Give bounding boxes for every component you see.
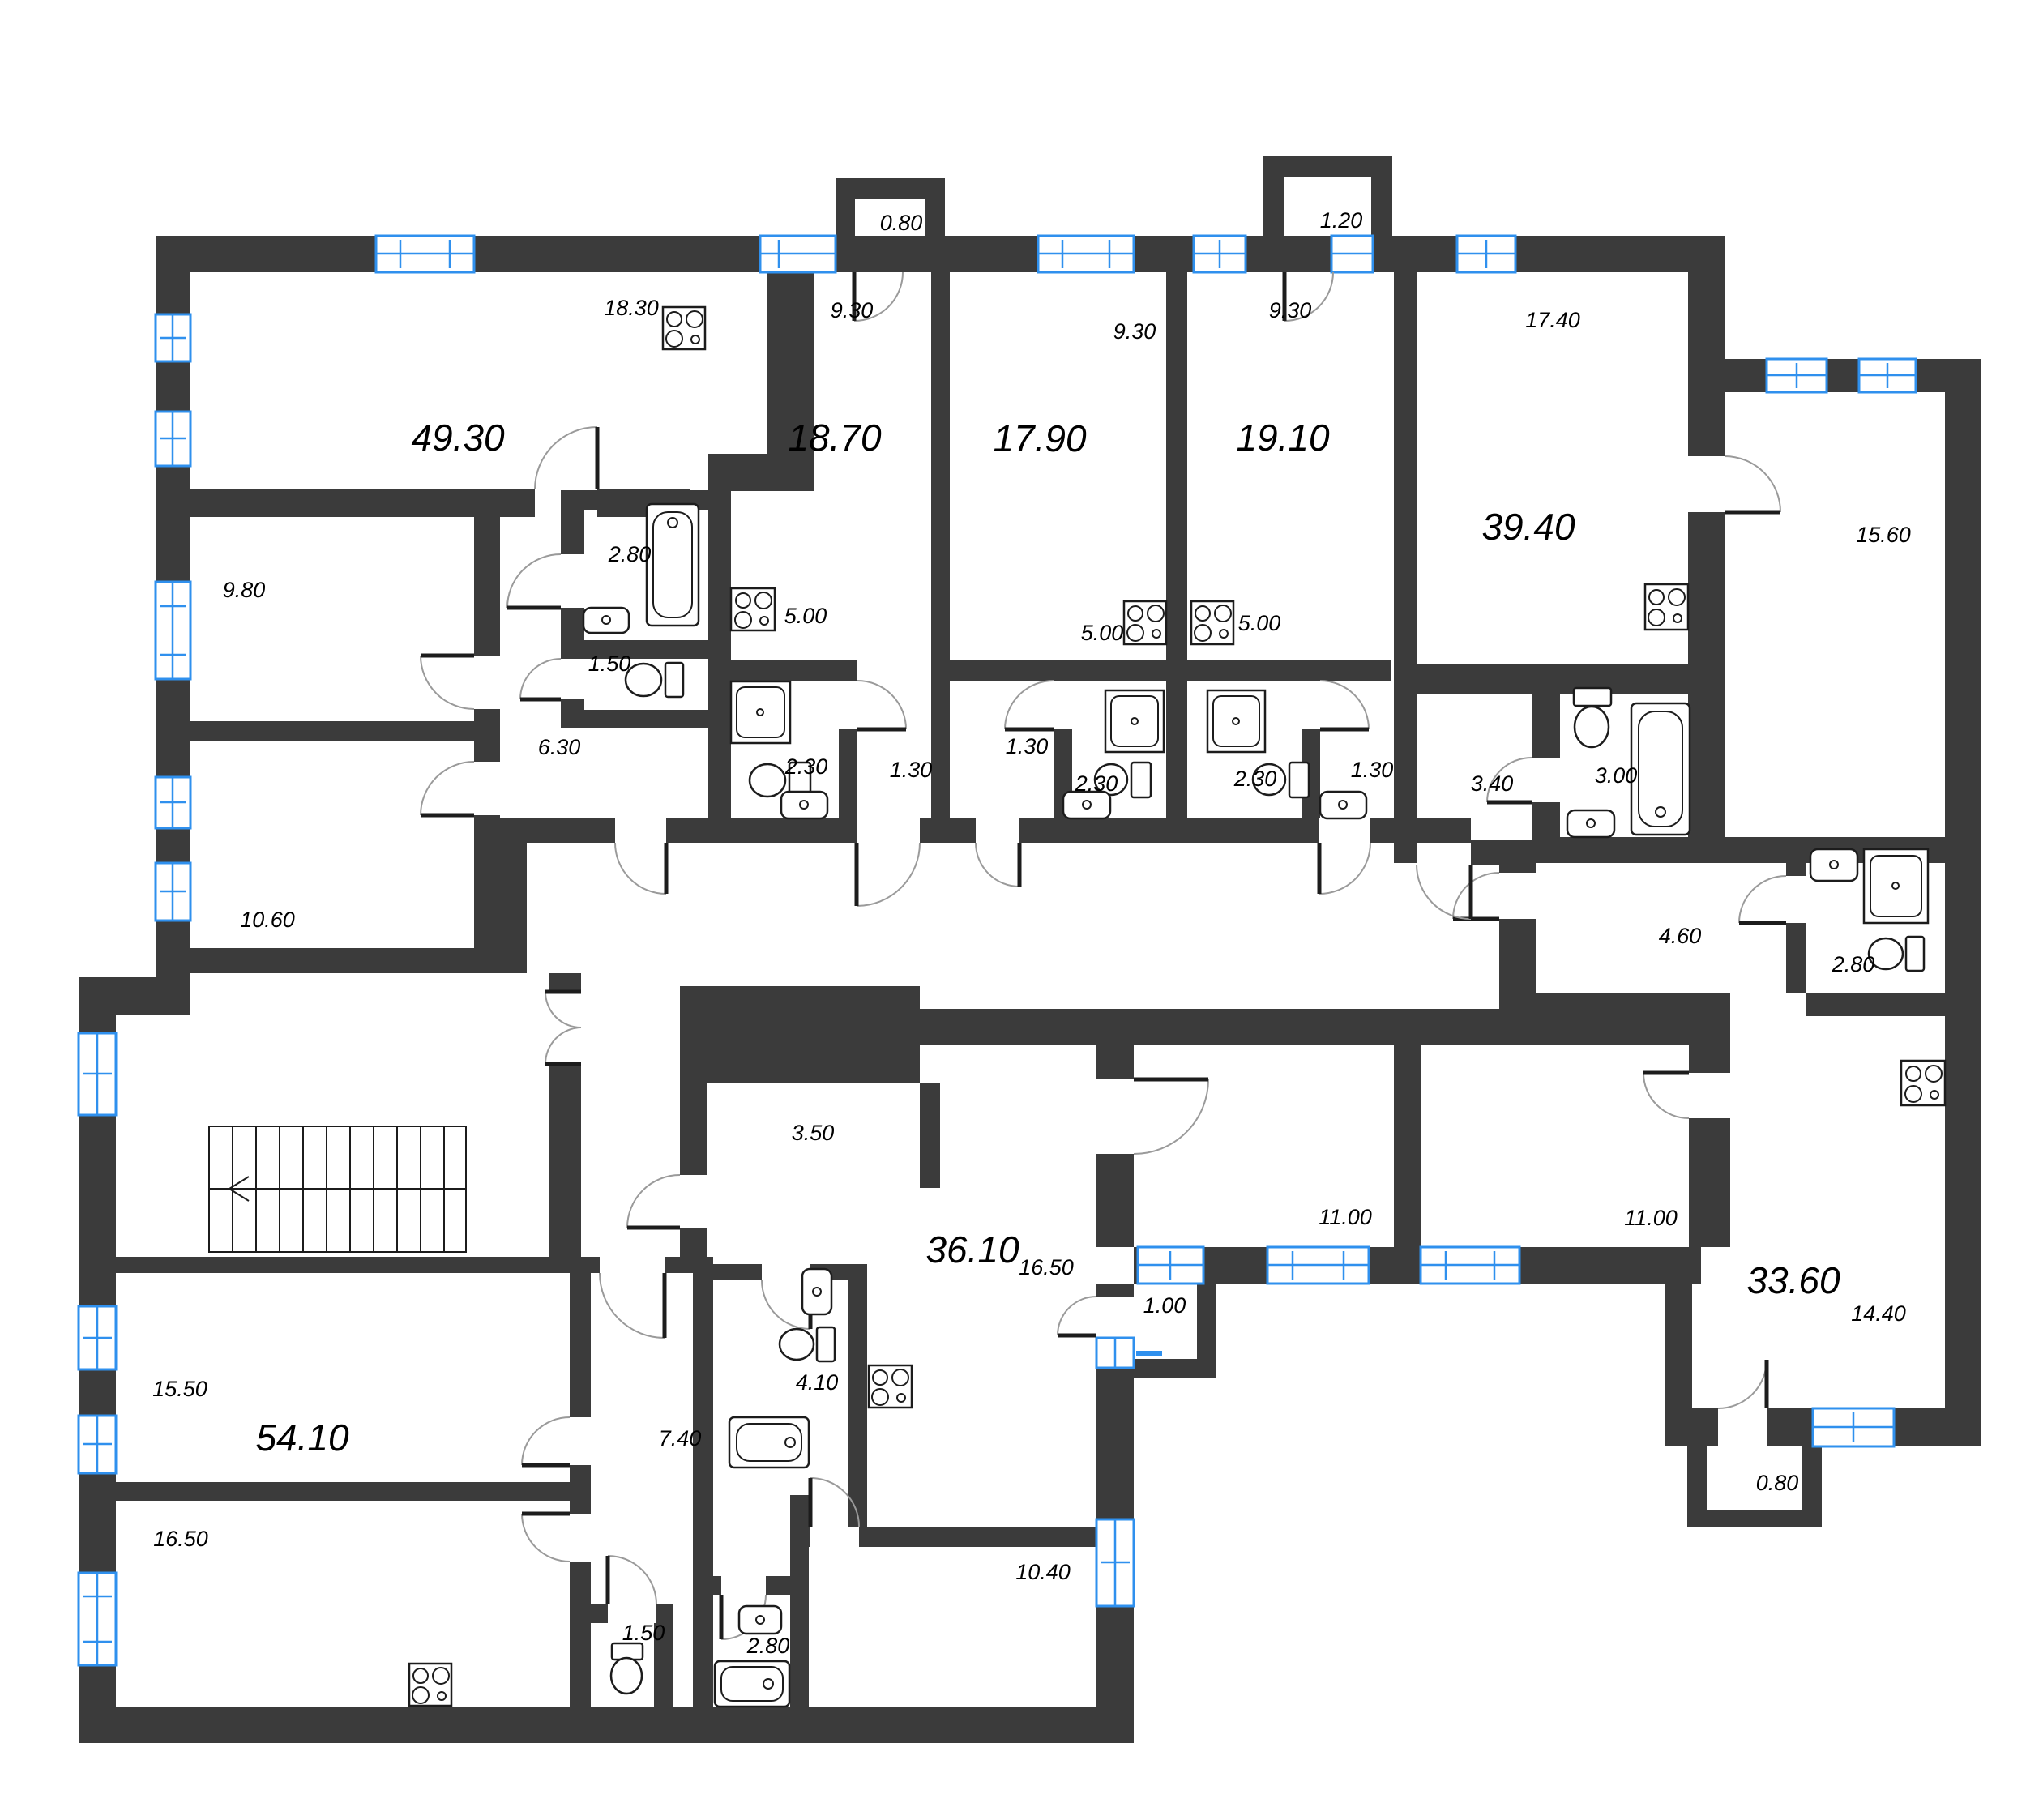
room-area-label: 2.80 [746, 1634, 790, 1658]
room-area-label: 3.00 [1595, 763, 1638, 788]
window-icon [1096, 1519, 1134, 1606]
toilet-icon [1574, 688, 1611, 747]
window-icon [1096, 1338, 1134, 1368]
door [1725, 456, 1780, 512]
window-icon [79, 1573, 116, 1665]
window-icon [156, 412, 190, 466]
window-icon [1767, 359, 1827, 392]
sink-icon [1567, 810, 1614, 837]
shower-icon [1864, 849, 1928, 923]
room-area-label: 16.50 [1019, 1255, 1074, 1280]
room-area-label: 11.00 [1319, 1205, 1372, 1229]
stove-icon [1645, 584, 1688, 630]
room-area-label: 6.30 [538, 735, 581, 759]
room-area-label: 7.40 [659, 1426, 702, 1450]
shower-icon [1105, 690, 1164, 752]
window-icon [1194, 236, 1246, 272]
room-area-label: 5.00 [784, 604, 827, 628]
room-area-label: 9.30 [831, 298, 874, 323]
room-area-label: 0.80 [880, 211, 923, 235]
room-area-label: 14.40 [1851, 1301, 1906, 1326]
stove-icon [663, 307, 705, 349]
room-area-label: 1.30 [1006, 734, 1049, 758]
room-area-label: 18.30 [604, 296, 659, 320]
door [608, 1556, 656, 1604]
toilet-icon [611, 1643, 643, 1694]
sink-icon [739, 1606, 781, 1634]
room-area-label: 2.30 [1075, 771, 1118, 796]
apartment-area-label: 39.40 [1481, 506, 1575, 548]
room-area-label: 3.40 [1471, 771, 1514, 796]
door [535, 427, 597, 489]
walls [79, 156, 1981, 1743]
door [507, 554, 561, 608]
room-area-label: 17.40 [1525, 308, 1580, 332]
bathtub-icon [647, 504, 699, 626]
room-area-label: 1.30 [1351, 758, 1394, 782]
room-area-label: 0.80 [1756, 1471, 1799, 1495]
apartment-area-label: 33.60 [1746, 1259, 1840, 1301]
room-area-label: 2.30 [1233, 767, 1277, 791]
window-icon [1267, 1247, 1369, 1284]
shower-icon [1207, 690, 1265, 752]
door [1319, 843, 1370, 894]
apartment-area-label: 17.90 [993, 417, 1087, 459]
window-icon [79, 1033, 116, 1115]
door [857, 843, 920, 906]
room-area-label: 5.00 [1081, 621, 1124, 645]
room-area-label: 11.00 [1624, 1206, 1678, 1230]
room-area-label: 2.30 [784, 754, 828, 779]
door [520, 659, 561, 699]
door [1320, 681, 1369, 729]
window-icon [1331, 236, 1373, 272]
door [522, 1514, 570, 1562]
room-area-label: 1.50 [588, 652, 631, 676]
door [1739, 876, 1786, 923]
room-area-label: 4.10 [796, 1370, 839, 1395]
apartment-area-label: 49.30 [411, 417, 505, 459]
room-area-label: 9.30 [1269, 298, 1312, 323]
door [1058, 1297, 1096, 1335]
room-area-label: 9.80 [223, 578, 266, 602]
apartment-area-label: 54.10 [255, 1416, 349, 1459]
shower-icon [731, 681, 790, 743]
room-area-label: 10.60 [240, 908, 295, 932]
window-icon [760, 236, 836, 272]
stairs-direction-arrow [229, 1177, 450, 1201]
stove-icon [1124, 601, 1166, 644]
stove-icon [869, 1365, 912, 1408]
room-area-label: 16.50 [153, 1527, 208, 1551]
door [1134, 1079, 1208, 1154]
door [421, 762, 474, 815]
sink-icon [781, 792, 827, 818]
window-icon [1138, 1247, 1203, 1284]
room-area-label: 10.40 [1015, 1560, 1071, 1584]
door [627, 1175, 680, 1228]
window-icon [156, 863, 190, 921]
room-area-label: 1.20 [1320, 208, 1363, 233]
floor-plan: 49.30 18.70 17.90 19.10 39.40 54.10 36.1… [0, 0, 2026, 1820]
room-area-label: 1.50 [622, 1621, 665, 1645]
sink-icon [802, 1269, 831, 1314]
door [1718, 1360, 1767, 1408]
stove-icon [731, 588, 775, 630]
stove-icon [1191, 601, 1233, 644]
room-area-label: 1.30 [890, 758, 933, 782]
bathtub-icon [729, 1417, 809, 1468]
room-area-label: 5.00 [1238, 611, 1281, 635]
stove-icon [409, 1664, 451, 1706]
window-icon [1813, 1408, 1894, 1446]
room-area-label: 15.60 [1856, 523, 1911, 547]
window-icon [1457, 236, 1515, 272]
toilet-icon [626, 663, 683, 697]
room-area-label: 2.80 [608, 542, 652, 566]
room-area-label: 4.60 [1659, 924, 1702, 948]
window-icon [79, 1416, 116, 1473]
window-icon [156, 314, 190, 361]
window-icon [1421, 1247, 1519, 1284]
door [1643, 1073, 1689, 1118]
toilet-icon [1869, 937, 1924, 971]
door [600, 1273, 665, 1338]
sink-icon [1320, 792, 1366, 818]
window-icon [376, 236, 474, 272]
stairs [209, 1126, 466, 1252]
window-icon [79, 1306, 116, 1369]
window-icon [1038, 236, 1134, 272]
room-area-label: 15.50 [152, 1377, 207, 1401]
door [857, 681, 906, 729]
room-area-label: 9.30 [1113, 319, 1156, 344]
bathtub-icon [1631, 703, 1690, 835]
apartment-area-label: 36.10 [925, 1228, 1019, 1271]
room-area-label: 3.50 [792, 1121, 835, 1145]
toilet-icon [780, 1327, 835, 1361]
window-icon [1859, 359, 1916, 392]
labels: 49.30 18.70 17.90 19.10 39.40 54.10 36.1… [152, 208, 1911, 1658]
door [522, 1417, 570, 1465]
sink-icon [583, 608, 629, 633]
apartment-area-label: 18.70 [788, 417, 882, 459]
stove-icon [1901, 1061, 1945, 1105]
door [976, 843, 1019, 887]
door [1005, 681, 1054, 729]
window-icon [156, 582, 190, 679]
room-area-label: 2.80 [1832, 952, 1875, 976]
door [421, 656, 474, 709]
window-icon [156, 777, 190, 828]
apartment-area-label: 19.10 [1236, 417, 1330, 459]
sink-icon [1810, 849, 1857, 881]
floor-plan-drawing: 49.30 18.70 17.90 19.10 39.40 54.10 36.1… [0, 0, 2026, 1820]
door [1453, 873, 1499, 919]
door [615, 843, 666, 894]
bathtub-icon [715, 1661, 789, 1707]
room-area-label: 1.00 [1143, 1293, 1186, 1318]
double-door [545, 992, 581, 1064]
